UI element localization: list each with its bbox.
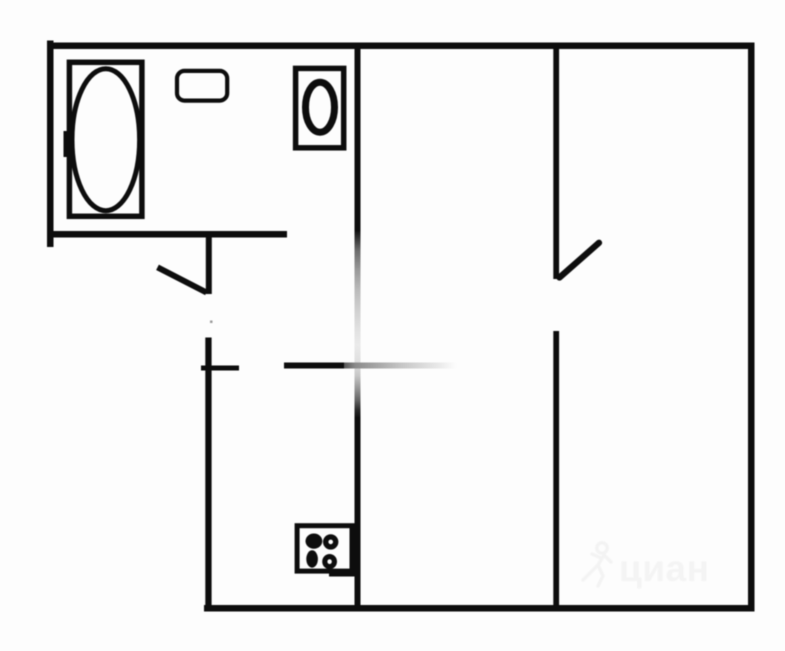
svg-text:циан: циан (619, 548, 709, 589)
